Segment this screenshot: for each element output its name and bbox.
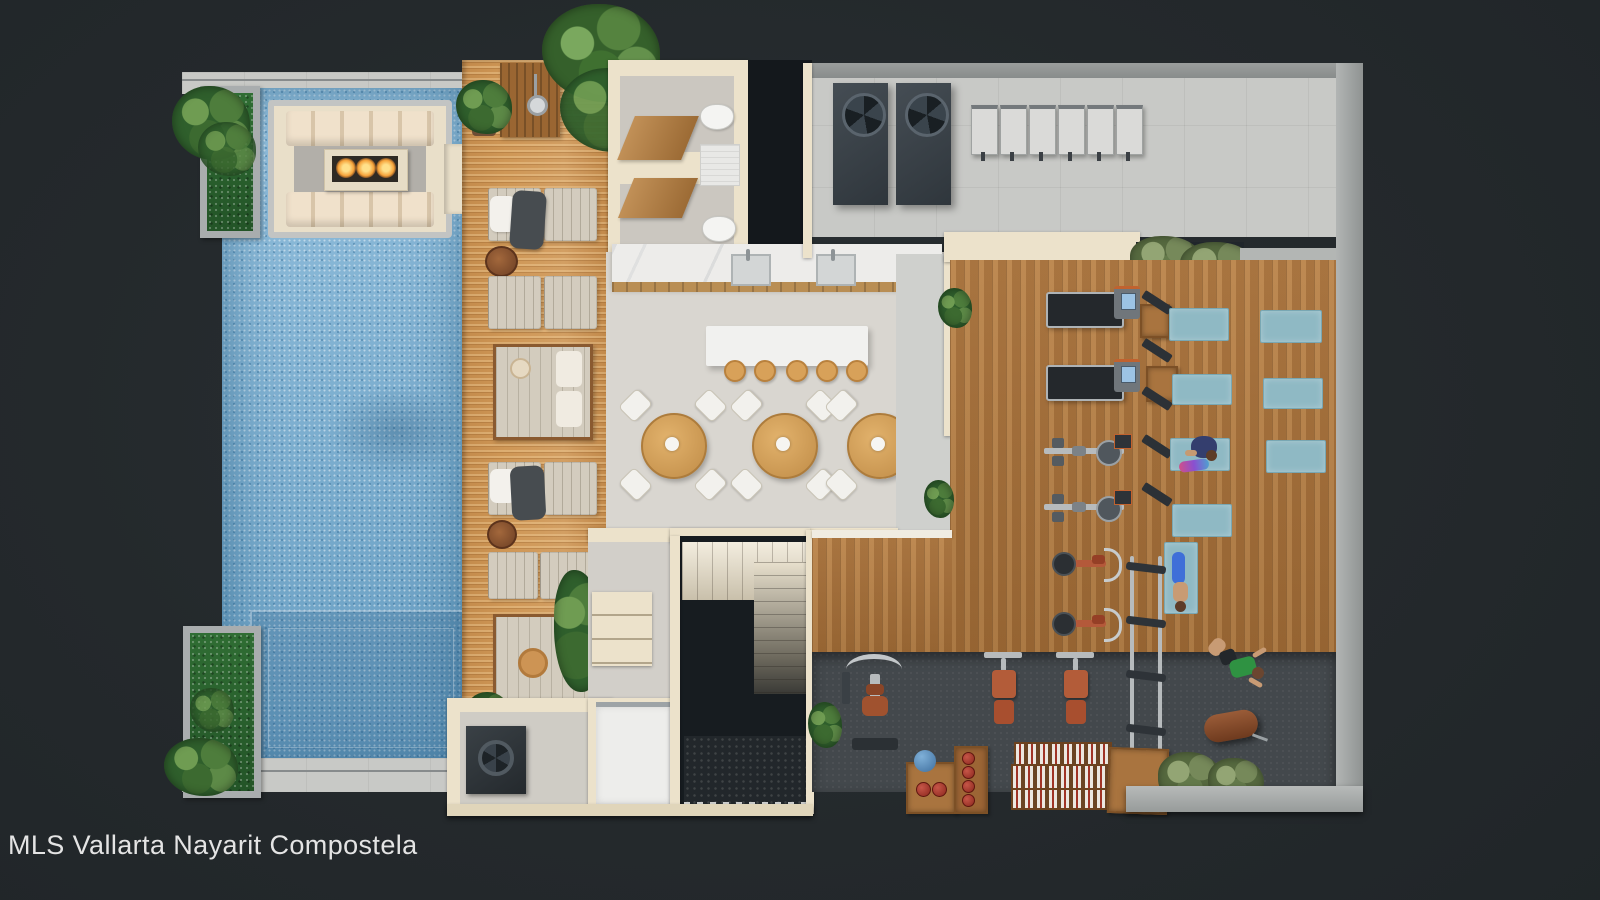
right-outer-wall (1336, 63, 1363, 789)
side-table-round (487, 520, 517, 549)
daybed-pillow-2 (556, 391, 582, 427)
bench-backpad (1064, 670, 1088, 698)
sun-lounger (544, 276, 597, 329)
spin-bike (1052, 606, 1122, 640)
dining-table-group (735, 396, 831, 492)
sun-lounger (544, 462, 597, 515)
rowing-machine (1042, 432, 1132, 470)
person-yoga (1175, 424, 1225, 474)
person-yoga-leggings (1178, 458, 1209, 473)
rowing-machine (1042, 488, 1132, 526)
elevator-door-track (596, 702, 672, 707)
sun-lounger (488, 552, 538, 599)
spin-bike (1052, 546, 1122, 580)
toilet-1 (700, 104, 734, 130)
person-stretch-torso (1173, 582, 1188, 602)
kettlebell (962, 766, 975, 779)
cable-machine (840, 650, 910, 760)
floorplan-render: MLS Vallarta Nayarit Compostela (0, 0, 1600, 900)
building-bottom-wall (447, 804, 813, 816)
bench-seatpad (994, 700, 1014, 724)
bike-wheel (1052, 612, 1076, 636)
pool-shadow (328, 386, 464, 476)
gym-wood-floor-lower (812, 538, 952, 656)
kitchen-sink-2 (816, 254, 856, 286)
sun-lounger (488, 276, 541, 329)
heat-pump-unit (1116, 105, 1143, 155)
kettlebell (932, 782, 947, 797)
towel-dark (510, 465, 547, 521)
kettlebell (962, 752, 975, 765)
yoga-mat (1172, 504, 1232, 537)
heat-pump-leg (1097, 152, 1101, 161)
bike-handlebar (1104, 608, 1122, 642)
dining-table-group (624, 396, 720, 492)
exercise-ball (914, 750, 936, 772)
kitchen-counter-wood-front (612, 282, 942, 292)
terrace-top-wall (812, 63, 1340, 78)
gym-top-wall (944, 232, 1140, 262)
bar-stool (724, 360, 746, 382)
lounge-sofa-top (286, 111, 434, 146)
sun-lounger (544, 188, 597, 241)
toilet-2 (702, 216, 736, 242)
bench-seatpad (1066, 700, 1086, 724)
rower-footplate (1052, 456, 1064, 466)
rower-footplate (1052, 438, 1064, 448)
heat-pump-leg (1126, 152, 1130, 161)
bike-handlebar (1104, 548, 1122, 582)
person-stretching (1164, 542, 1200, 618)
rower-console (1114, 434, 1132, 449)
heat-pump-leg (981, 152, 985, 161)
cable-machine-seat (862, 696, 888, 716)
bush-bottom-left-small (190, 688, 234, 732)
heat-pump-unit (1058, 105, 1085, 155)
terrace-left-wall (803, 63, 812, 258)
bush-rubber-left (808, 702, 842, 748)
fire-flame-1 (336, 158, 356, 178)
bike-wheel (1052, 552, 1076, 576)
person-stretch-legs (1172, 552, 1185, 584)
heat-pump-leg (1039, 152, 1043, 161)
person-yoga-arm (1185, 450, 1197, 456)
kettlebell (916, 782, 931, 797)
kitchen-sink-1 (731, 254, 771, 286)
kettlebell (962, 780, 975, 793)
fire-flame-3 (376, 158, 396, 178)
treadmill (1046, 292, 1124, 328)
heat-pump-leg (1068, 152, 1072, 161)
heat-pump-unit (1000, 105, 1027, 155)
treadmill-screen (1121, 293, 1136, 310)
faucet-1-icon (746, 249, 750, 261)
deck-plant-top (456, 80, 512, 134)
yoga-mat (1263, 378, 1323, 409)
person-yoga-head (1206, 450, 1217, 461)
daybed-pillow-1 (556, 351, 582, 387)
rower-console (1114, 490, 1132, 505)
rower-footplate (1052, 494, 1064, 504)
shower-head-icon (527, 95, 548, 116)
person-standing-head (1252, 667, 1264, 679)
stairwell-grate-floor (684, 736, 806, 806)
bar-stool (846, 360, 868, 382)
watermark-text: MLS Vallarta Nayarit Compostela (8, 830, 418, 861)
bench-backpad (992, 670, 1016, 698)
heat-pump-leg (1010, 152, 1014, 161)
bar-stool (754, 360, 776, 382)
bar-stool (786, 360, 808, 382)
cable-machine-weights (842, 672, 850, 704)
hvac-fan-2-icon (905, 93, 949, 137)
treadmill (1046, 365, 1124, 401)
table-centerpiece (665, 437, 679, 451)
weight-bench (1056, 650, 1096, 728)
rower-seat (1072, 446, 1086, 456)
sun-hat (518, 648, 548, 678)
bush-top-left (198, 122, 256, 176)
yoga-mat (1169, 308, 1229, 341)
towel-dark (509, 190, 547, 250)
person-standing (1208, 634, 1270, 696)
table-centerpiece (871, 437, 885, 451)
side-table-round (485, 246, 518, 277)
cable-machine-base (852, 738, 898, 750)
weight-bench (984, 650, 1024, 728)
person-stretch-head (1175, 601, 1186, 612)
dumbbell-rack-row (1011, 764, 1113, 790)
stairwell-left-wall (670, 536, 680, 814)
kettlebell (962, 794, 975, 807)
cable-machine-backpad (866, 684, 884, 695)
gym-bush-entry (938, 288, 972, 328)
stairs-descending-flight (754, 562, 806, 694)
restroom-shower (700, 144, 740, 186)
lounge-sofa-bottom (286, 192, 434, 227)
daybed-round-pillow (510, 358, 531, 379)
pump-fan-icon (478, 740, 514, 776)
bush-bottom-left-overhang (164, 738, 238, 796)
heat-pump-unit (1029, 105, 1056, 155)
person-standing-arm (1252, 647, 1267, 659)
bar-stool (816, 360, 838, 382)
corridor-niche (592, 592, 652, 666)
pool-shelf-step (268, 628, 454, 748)
rower-seat (1072, 502, 1086, 512)
table-centerpiece (776, 437, 790, 451)
gym-lower-wall-line (812, 530, 952, 538)
dumbbell-rack-row (1014, 742, 1112, 766)
dumbbell-rack-row (1011, 788, 1113, 810)
bottom-right-wall (1126, 786, 1363, 812)
yoga-mat (1260, 310, 1322, 343)
pool-top-rail (182, 79, 472, 81)
treadmill-screen (1121, 366, 1136, 383)
heat-pump-unit (1087, 105, 1114, 155)
rower-footplate (1052, 512, 1064, 522)
heat-pump-unit (971, 105, 998, 155)
fire-flame-2 (356, 158, 376, 178)
elevator-cab (596, 706, 672, 804)
gym-bush-walkway (924, 480, 954, 518)
yoga-mat (1172, 374, 1232, 405)
yoga-mat (1266, 440, 1326, 473)
faucet-2-icon (831, 249, 835, 261)
hvac-fan-1-icon (842, 93, 886, 137)
